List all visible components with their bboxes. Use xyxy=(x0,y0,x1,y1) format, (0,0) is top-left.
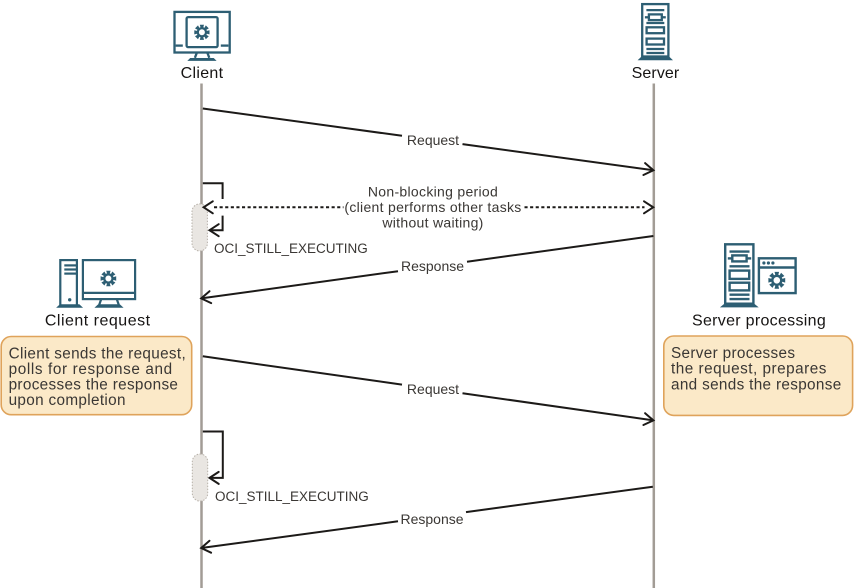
svg-text:Server processing: Server processing xyxy=(692,312,826,329)
svg-text:Request: Request xyxy=(407,381,459,397)
svg-text:Non-blocking period(client per: Non-blocking period(client performs othe… xyxy=(344,183,521,230)
svg-text:Client: Client xyxy=(181,65,224,82)
svg-text:Client request: Client request xyxy=(45,313,151,330)
svg-text:Server: Server xyxy=(632,65,680,82)
svg-text:OCI_STILL_EXECUTING: OCI_STILL_EXECUTING xyxy=(215,489,369,504)
svg-text:Request: Request xyxy=(407,132,459,148)
svg-text:OCI_STILL_EXECUTING: OCI_STILL_EXECUTING xyxy=(214,241,368,256)
svg-text:Response: Response xyxy=(400,511,463,527)
svg-text:Response: Response xyxy=(401,258,464,274)
